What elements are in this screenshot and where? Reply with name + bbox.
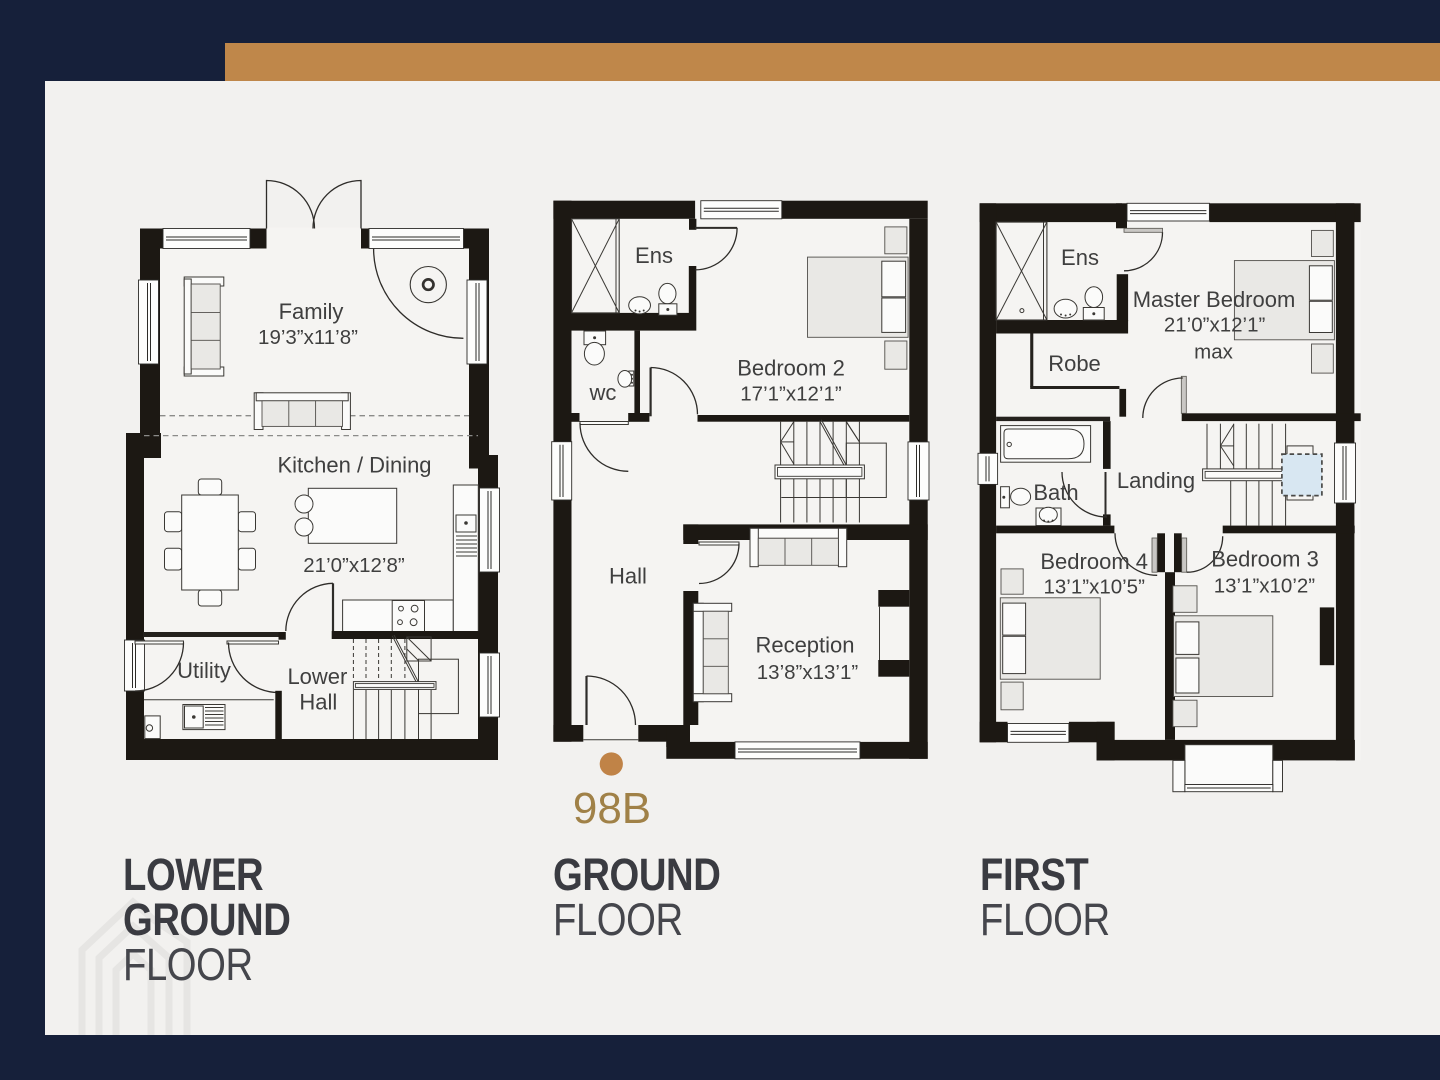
svg-text:max: max <box>1194 340 1233 363</box>
svg-text:Utility: Utility <box>177 658 231 683</box>
svg-text:17’1”x12’1”: 17’1”x12’1” <box>740 383 842 406</box>
svg-text:98B: 98B <box>573 784 651 833</box>
svg-text:Bedroom 2: Bedroom 2 <box>737 356 845 381</box>
svg-text:Reception: Reception <box>755 633 854 658</box>
svg-text:Kitchen / Dining: Kitchen / Dining <box>277 453 431 478</box>
svg-text:Lower: Lower <box>287 664 347 689</box>
svg-text:Bedroom 3: Bedroom 3 <box>1211 547 1319 572</box>
svg-text:19’3”x11’8”: 19’3”x11’8” <box>258 326 358 349</box>
svg-text:Ens: Ens <box>1061 245 1099 270</box>
svg-text:21’0”x12’1”: 21’0”x12’1” <box>1164 314 1266 337</box>
svg-text:Family: Family <box>279 299 344 324</box>
svg-text:13’1”x10’2”: 13’1”x10’2” <box>1214 575 1316 598</box>
svg-text:Hall: Hall <box>299 690 337 715</box>
svg-text:13’8”x13’1”: 13’8”x13’1” <box>757 661 859 684</box>
svg-text:Bedroom 4: Bedroom 4 <box>1040 549 1148 574</box>
svg-text:Robe: Robe <box>1048 351 1101 376</box>
svg-text:wc: wc <box>589 380 617 405</box>
svg-text:Hall: Hall <box>609 564 647 589</box>
svg-text:Landing: Landing <box>1117 468 1195 493</box>
svg-text:Ens: Ens <box>635 243 673 268</box>
svg-text:21’0”x12’8”: 21’0”x12’8” <box>303 554 405 577</box>
svg-text:Bath: Bath <box>1033 480 1078 505</box>
svg-text:Master Bedroom: Master Bedroom <box>1133 287 1296 312</box>
svg-text:13’1”x10’5”: 13’1”x10’5” <box>1043 576 1145 599</box>
